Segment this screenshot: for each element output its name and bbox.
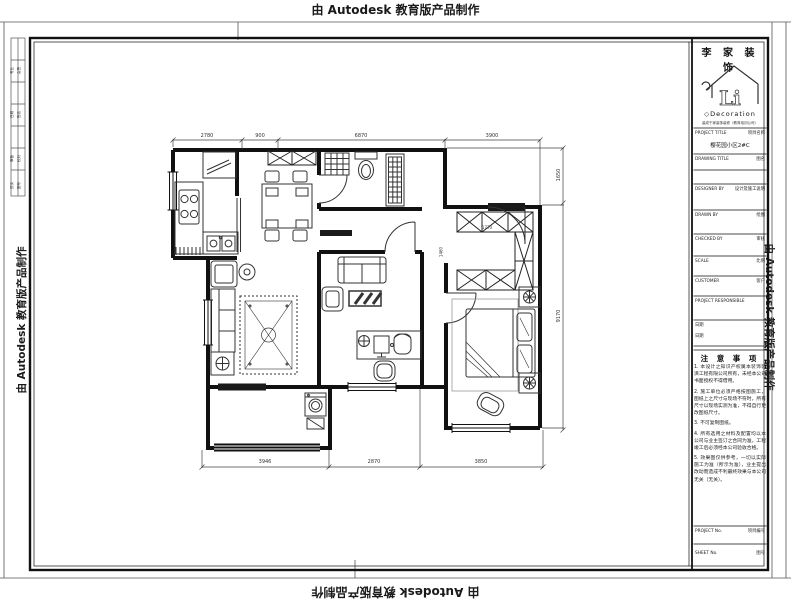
dimension-lines: [171, 138, 566, 470]
dining-table: [262, 184, 312, 228]
date-label-2: 日期: [695, 334, 704, 339]
notes-title: 注 意 事 项: [692, 353, 768, 364]
date-row-1: 日期: [692, 323, 768, 328]
project-no-cn: 项目编号: [748, 529, 765, 534]
checked-label: CHECKED BY: [695, 237, 723, 242]
scale-cn: 比例: [756, 259, 765, 264]
sink: [207, 236, 220, 251]
signoff-cell: 校对: [17, 155, 22, 162]
drawing-sheet: 由 Autodesk 教育版产品制作 由 Autodesk 教育版产品制作 由 …: [0, 0, 791, 600]
sheet-no-label: SHEET No.: [695, 551, 718, 556]
sheet-no-row: SHEET No. 图号: [692, 551, 768, 556]
sofa-cushion: [219, 310, 235, 331]
drawn-cn: 绘图: [756, 213, 765, 218]
floor-plan-canvas: [0, 0, 791, 600]
border: [30, 38, 768, 570]
signoff-cell: 审核: [10, 155, 15, 162]
date-label-1: 日期: [695, 323, 704, 328]
dim-label: 2870: [368, 459, 381, 465]
dining-set: [262, 171, 312, 241]
note-item: 2. 施工单位必须严格按图施工，图纸上之尺寸与现场不符时，所有尺寸以现场实测为准…: [694, 389, 766, 418]
designer-label: DESIGNER BY: [695, 187, 724, 192]
bedroom-chair: [475, 390, 506, 418]
door-thresholds: [218, 203, 525, 391]
drawing-title-label: DRAWING TITLE: [695, 157, 729, 162]
dim-label: 2780: [201, 133, 214, 139]
project-no-row: PROJECT No. 项目编号: [692, 529, 768, 534]
toilet-tank: [355, 152, 377, 159]
brand-tagline: 装成千家装饰装修（教育培训公司）: [695, 120, 765, 126]
balcony-furniture: [305, 393, 326, 429]
checked-row: CHECKED BY 审核: [692, 237, 768, 242]
dim-label: 3850: [475, 459, 488, 465]
drawing-title-cn: 图名: [756, 157, 765, 162]
signoff-cell: 页次: [10, 182, 15, 189]
kitchen-furniture: [175, 152, 238, 255]
note-item: 3. 不可复制图纸。: [694, 420, 766, 427]
signoff-cell: 专业: [10, 67, 15, 74]
dining-chair: [293, 230, 307, 241]
sofa-back: [211, 289, 219, 352]
stove: [179, 190, 199, 224]
dim-label: 1460: [439, 247, 444, 257]
project-title-row: PROJECT TITLE 项目名称: [692, 131, 768, 136]
scale-row: SCALE 比例: [692, 259, 768, 264]
scale-label: SCALE: [695, 259, 709, 264]
signoff-cell: 图号: [17, 182, 22, 189]
note-item: 5. 效果图仅供参考，一切以实际施工为准（所示为准），业主提出改动而造成不利最终…: [694, 455, 766, 484]
date-row-2: 日期: [692, 334, 768, 339]
bedroom-furniture: [452, 287, 540, 418]
project-title-label: PROJECT TITLE: [695, 131, 727, 136]
signoff-cell: 会签: [17, 67, 22, 74]
notes-list: 1. 本设计之知识产权属本装饰装潢工程有限公司所有，未经本公司书面授权不得借用。…: [694, 364, 766, 487]
note-item: 1. 本设计之知识产权属本装饰装潢工程有限公司所有，未经本公司书面授权不得借用。: [694, 364, 766, 386]
responsible-row: PROJECT RESPONSIBLE: [692, 299, 768, 304]
sheet-no-cn: 图号: [756, 551, 765, 556]
plant: [239, 264, 255, 280]
dim-label: 1770: [482, 225, 492, 230]
designer-row: DESIGNER BY 设计及施工说明: [692, 187, 768, 192]
checked-cn: 审核: [756, 237, 765, 242]
drawing-title-row: DRAWING TITLE 图名: [692, 157, 768, 162]
note-item: 4. 所有选用之材料及配置均以本公司与业主签订之合同为准，工程竣工后必须经本公司…: [694, 431, 766, 453]
bathroom-fixtures: [325, 152, 404, 206]
logo-text: Li: [692, 88, 768, 108]
project-title-cn: 项目名称: [748, 131, 765, 136]
project-title-value: 樱花园小区2#C: [692, 141, 768, 149]
living-furniture: [211, 261, 297, 375]
sofa-cushion: [219, 331, 235, 352]
dim-label: 1650: [556, 169, 562, 182]
drawn-label: DRAWN BY: [695, 213, 718, 218]
designer-cn: 设计及施工说明: [735, 187, 765, 192]
dining-chair: [265, 230, 279, 241]
desk-chair: [394, 334, 411, 354]
drawn-row: DRAWN BY 绘图: [692, 213, 768, 218]
company-name: 李 家 装 饰: [692, 44, 768, 74]
signoff-cell: 签名: [17, 111, 22, 118]
customer-label: CUSTOMER: [695, 279, 719, 284]
dining-chair: [293, 171, 307, 182]
customer-cn: 客户: [756, 279, 765, 284]
customer-row: CUSTOMER 客户: [692, 279, 768, 284]
project-no-label: PROJECT No.: [695, 529, 722, 534]
dim-label: 900: [255, 133, 265, 139]
brand-subtitle: ◇Decoration: [692, 110, 768, 118]
computer-monitor: [374, 336, 389, 353]
responsible-label: PROJECT RESPONSIBLE: [695, 299, 745, 304]
dim-label: 6870: [355, 133, 368, 139]
sheet-frame: [0, 22, 791, 578]
toilet: [359, 161, 374, 180]
dining-chair: [265, 171, 279, 182]
signoff-cell: 日期: [10, 111, 15, 118]
dim-label: 9170: [556, 310, 562, 323]
sofa-cushion: [219, 289, 235, 310]
study-furniture: [322, 257, 421, 381]
dim-label: 3900: [486, 133, 499, 139]
dim-label: 3946: [259, 459, 272, 465]
